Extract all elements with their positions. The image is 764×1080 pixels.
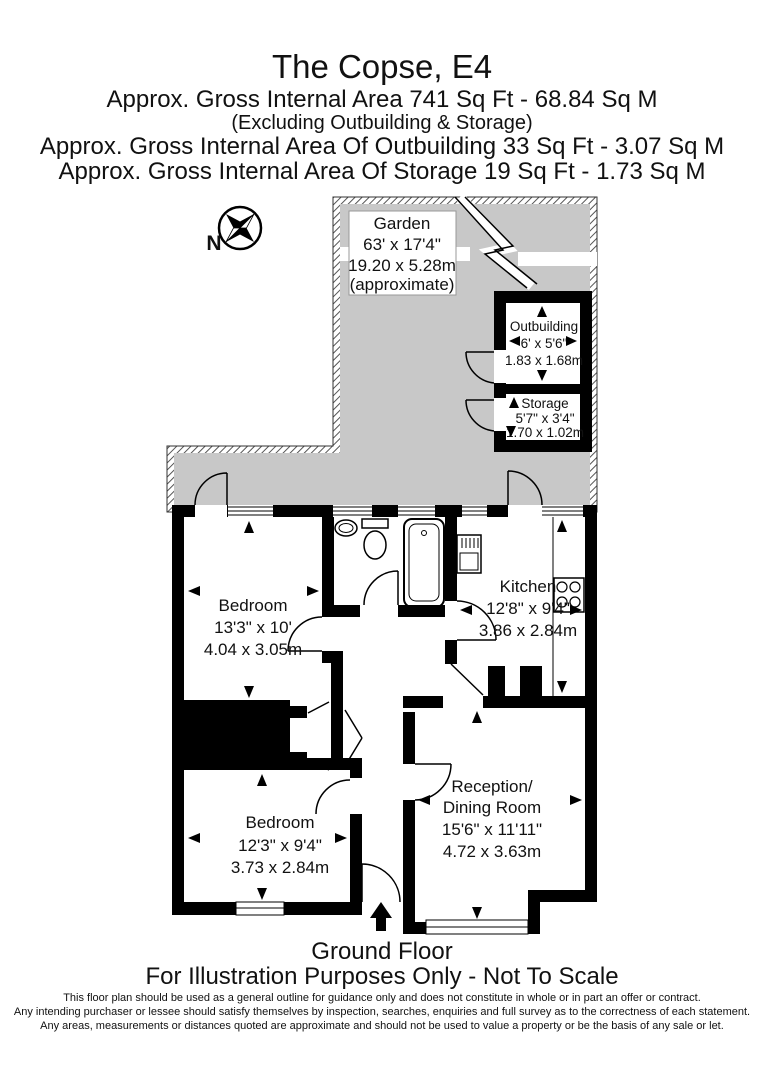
storage-area: Approx. Gross Internal Area Of Storage 1… [59,158,706,185]
outbuilding-dim-m: 1.83 x 1.68m [505,353,583,368]
compass-rose: N [206,207,261,255]
kitchen-sink-icon [457,535,481,573]
storage-dim-ft: 5'7" x 3'4" [515,411,574,426]
room-bedroom-2: Bedroom 12'3" x 9'4" 3.73 x 2.84m [231,813,329,877]
outbuilding-area: Approx. Gross Internal Area Of Outbuildi… [40,133,724,160]
reception-dim-ft: 15'6" x 11'11" [442,820,542,839]
page-title: The Copse, E4 [272,48,492,85]
kitchen-dim-m: 3.86 x 2.84m [479,621,577,640]
garden-approx-note: (approximate) [350,275,455,294]
reception-dim-m: 4.72 x 3.63m [443,842,541,861]
bedroom2-name: Bedroom [246,813,315,832]
disclaimer-line-1: This floor plan should be used as a gene… [63,992,701,1004]
reception-name: Reception/ [451,777,533,796]
disclaimer-line-2: Any intending purchaser or lessee should… [14,1006,750,1018]
bedroom1-name: Bedroom [219,596,288,615]
excluding-note: (Excluding Outbuilding & Storage) [231,112,532,134]
compass-north-label: N [206,232,221,255]
window [462,505,487,517]
outbuilding-name: Outbuilding [510,319,578,334]
window [542,505,583,517]
garden-dim-ft: 63' x 17'4" [363,235,441,254]
kitchen-name: Kitchen [500,577,557,596]
garden-dim-m: 19.20 x 5.28m [348,256,456,275]
floorplan-page: The Copse, E4 Approx. Gross Internal Are… [0,0,764,1080]
disclaimer-line-3: Any areas, measurements or distances quo… [40,1020,724,1032]
bedroom2-dim-ft: 12'3" x 9'4" [238,836,322,855]
gross-internal-area: Approx. Gross Internal Area 741 Sq Ft - … [107,86,658,113]
header: The Copse, E4 Approx. Gross Internal Are… [40,48,724,185]
illustration-note: For Illustration Purposes Only - Not To … [145,963,618,990]
outbuilding-dim-ft: 6' x 5'6" [521,336,568,351]
chimney-block [184,700,290,770]
window [228,505,273,517]
window [398,505,435,517]
floor-plan-drawing: The Copse, E4 Approx. Gross Internal Are… [0,0,764,1080]
window-bedroom2 [236,902,284,915]
bedroom2-dim-m: 3.73 x 2.84m [231,858,329,877]
window-reception-bay [426,920,528,934]
reception-name2: Dining Room [443,798,541,817]
kitchen-dim-ft: 12'8" x 9'4" [486,599,570,618]
garden-break-right [518,252,597,266]
bedroom1-dim-m: 4.04 x 3.05m [204,640,302,659]
storage-name: Storage [521,396,568,411]
window [333,505,372,517]
floor-label: Ground Floor [311,938,452,965]
garden-name: Garden [374,214,431,233]
room-bedroom-1: Bedroom 13'3" x 10' 4.04 x 3.05m [204,596,302,659]
storage-dim-m: 1.70 x 1.02m [506,425,584,440]
footer: Ground Floor For Illustration Purposes O… [14,938,750,1032]
bedroom1-dim-ft: 13'3" x 10' [214,618,292,637]
